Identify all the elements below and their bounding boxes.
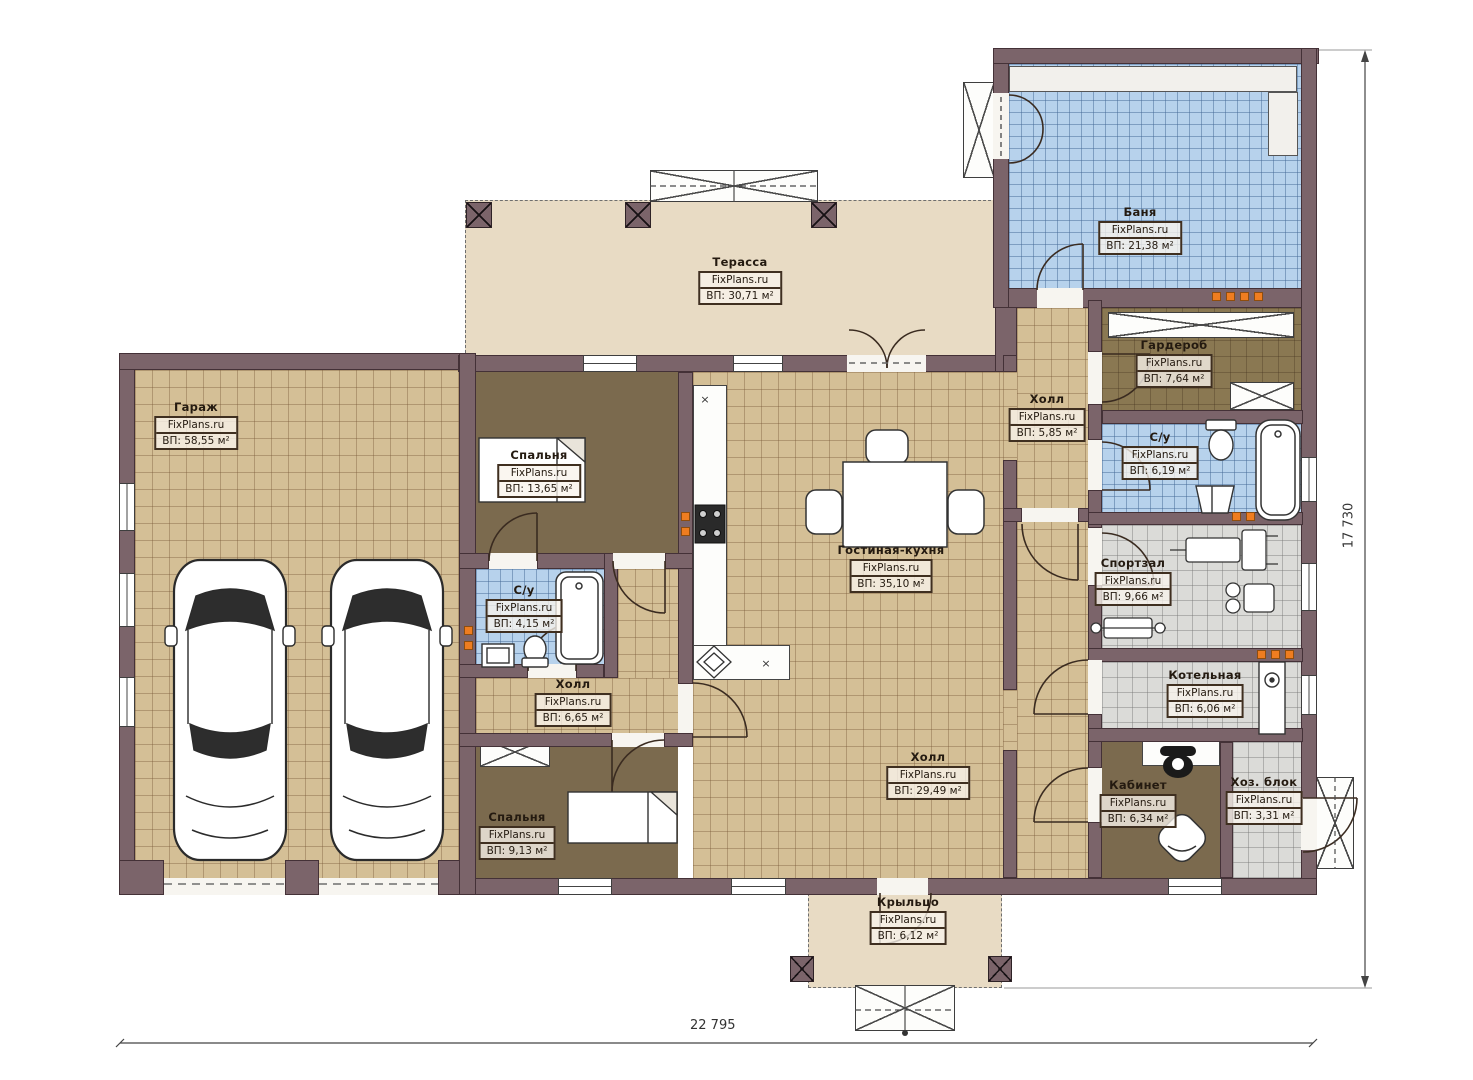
bed-bedroom2 bbox=[568, 792, 677, 843]
room-name: Котельная bbox=[1168, 668, 1241, 682]
dimension-width: 22 795 bbox=[690, 1018, 736, 1033]
room-name: Гардероб bbox=[1141, 338, 1208, 352]
sink-1 bbox=[482, 644, 514, 667]
room-label-bedroom1: Спальня FixPlans.ruВП: 13,65 м² bbox=[497, 448, 581, 498]
room-label-banya: Баня FixPlans.ruВП: 21,38 м² bbox=[1098, 205, 1182, 255]
dimension-height: 17 730 bbox=[1341, 503, 1356, 549]
brand-label: FixPlans.ru bbox=[499, 466, 579, 480]
room-label-bathroom2: С/у FixPlans.ruВП: 6,19 м² bbox=[1122, 430, 1199, 480]
room-name: Холл bbox=[1030, 392, 1065, 406]
room-area: ВП: 6,34 м² bbox=[1102, 810, 1175, 826]
kitchen-sink bbox=[697, 646, 731, 678]
brand-label: FixPlans.ru bbox=[1138, 356, 1211, 370]
vent-dot bbox=[681, 527, 690, 536]
brand-label: FixPlans.ru bbox=[1097, 574, 1170, 588]
room-area: ВП: 58,55 м² bbox=[156, 432, 236, 448]
room-area: ВП: 30,71 м² bbox=[700, 287, 780, 303]
room-name: Терасса bbox=[712, 255, 767, 269]
room-area: ВП: 13,65 м² bbox=[499, 480, 579, 496]
vent-dot bbox=[1232, 512, 1241, 521]
room-label-office: Кабинет FixPlans.ruВП: 6,34 м² bbox=[1100, 778, 1177, 828]
kitchen-stove bbox=[695, 505, 725, 543]
room-name: Гараж bbox=[174, 400, 218, 414]
room-label-gym: Спортзал FixPlans.ruВП: 9,66 м² bbox=[1095, 556, 1172, 606]
toilet-1 bbox=[522, 636, 548, 667]
brand-label: FixPlans.ru bbox=[1100, 223, 1180, 237]
vent-dot bbox=[1285, 650, 1294, 659]
vent-dot bbox=[1257, 650, 1266, 659]
vent-dot bbox=[1212, 292, 1221, 301]
room-area: ВП: 3,31 м² bbox=[1228, 807, 1301, 823]
room-label-garage: Гараж FixPlans.ruВП: 58,55 м² bbox=[154, 400, 238, 450]
brand-label: FixPlans.ru bbox=[888, 768, 968, 782]
kitchen-x-mark: × bbox=[700, 393, 709, 406]
room-area: ВП: 9,66 м² bbox=[1097, 588, 1170, 604]
room-name: Спортзал bbox=[1101, 556, 1165, 570]
room-label-hall-bedrooms: Холл FixPlans.ruВП: 6,65 м² bbox=[535, 677, 612, 727]
brand-label: FixPlans.ru bbox=[851, 561, 931, 575]
vent-dot bbox=[1240, 292, 1249, 301]
brand-label: FixPlans.ru bbox=[1124, 448, 1197, 462]
dining-set bbox=[806, 430, 984, 547]
room-name: Баня bbox=[1123, 205, 1156, 219]
room-name: С/у bbox=[1149, 430, 1170, 444]
room-area: ВП: 7,64 м² bbox=[1138, 370, 1211, 386]
room-area: ВП: 6,06 м² bbox=[1169, 700, 1242, 716]
room-label-bedroom2: Спальня FixPlans.ruВП: 9,13 м² bbox=[479, 810, 556, 860]
room-label-wardrobe: Гардероб FixPlans.ruВП: 7,64 м² bbox=[1136, 338, 1213, 388]
vent-dot bbox=[1226, 292, 1235, 301]
brand-label: FixPlans.ru bbox=[1228, 793, 1301, 807]
brand-label: FixPlans.ru bbox=[488, 601, 561, 615]
room-name: С/у bbox=[513, 583, 534, 597]
room-area: ВП: 6,19 м² bbox=[1124, 462, 1197, 478]
room-label-hall-main: Холл FixPlans.ruВП: 29,49 м² bbox=[886, 750, 970, 800]
room-label-utility: Хоз. блок FixPlans.ruВП: 3,31 м² bbox=[1226, 775, 1303, 825]
room-area: ВП: 21,38 м² bbox=[1100, 237, 1180, 253]
room-name: Холл bbox=[911, 750, 946, 764]
room-name: Хоз. блок bbox=[1231, 775, 1298, 789]
room-area: ВП: 6,12 м² bbox=[872, 927, 945, 943]
vent-dot bbox=[464, 641, 473, 650]
brand-label: FixPlans.ru bbox=[156, 418, 236, 432]
brand-label: FixPlans.ru bbox=[481, 828, 554, 842]
car-1 bbox=[165, 560, 295, 860]
office-chair bbox=[1160, 746, 1196, 778]
brand-label: FixPlans.ru bbox=[537, 695, 610, 709]
bathtub-2 bbox=[1256, 420, 1300, 520]
sink-2 bbox=[1196, 486, 1234, 513]
room-label-porch: Крыльцо FixPlans.ruВП: 6,12 м² bbox=[870, 895, 947, 945]
vent-dot bbox=[1254, 292, 1263, 301]
boiler-unit bbox=[1259, 662, 1285, 734]
room-area: ВП: 5,85 м² bbox=[1011, 424, 1084, 440]
vent-dot bbox=[1246, 512, 1255, 521]
room-area: ВП: 6,65 м² bbox=[537, 709, 610, 725]
room-name: Спальня bbox=[510, 448, 567, 462]
room-label-living-kitchen: Гостиная-кухня FixPlans.ruВП: 35,10 м² bbox=[838, 543, 945, 593]
floor-plan: × × bbox=[0, 0, 1473, 1080]
brand-label: FixPlans.ru bbox=[872, 913, 945, 927]
plan-linework: × × bbox=[0, 0, 1473, 1080]
room-name: Гостиная-кухня bbox=[838, 543, 945, 557]
room-name: Спальня bbox=[488, 810, 545, 824]
brand-label: FixPlans.ru bbox=[1169, 686, 1242, 700]
room-area: ВП: 9,13 м² bbox=[481, 842, 554, 858]
vent-dot bbox=[1271, 650, 1280, 659]
brand-label: FixPlans.ru bbox=[1102, 796, 1175, 810]
brand-label: FixPlans.ru bbox=[700, 273, 780, 287]
room-area: ВП: 4,15 м² bbox=[488, 615, 561, 631]
room-area: ВП: 35,10 м² bbox=[851, 575, 931, 591]
vent-dot bbox=[464, 626, 473, 635]
room-label-hall-small: Холл FixPlans.ruВП: 5,85 м² bbox=[1009, 392, 1086, 442]
brand-label: FixPlans.ru bbox=[1011, 410, 1084, 424]
room-label-boiler: Котельная FixPlans.ruВП: 6,06 м² bbox=[1167, 668, 1244, 718]
toilet-2 bbox=[1206, 420, 1236, 460]
bathtub-1 bbox=[556, 572, 603, 664]
room-label-bathroom1: С/у FixPlans.ruВП: 4,15 м² bbox=[486, 583, 563, 633]
room-name: Кабинет bbox=[1109, 778, 1167, 792]
room-name: Холл bbox=[556, 677, 591, 691]
kitchen-x-mark2: × bbox=[761, 657, 770, 670]
car-2 bbox=[322, 560, 452, 860]
dimension-lines bbox=[116, 50, 1372, 1047]
room-area: ВП: 29,49 м² bbox=[888, 782, 968, 798]
room-label-terrace: Терасса FixPlans.ruВП: 30,71 м² bbox=[698, 255, 782, 305]
vent-dot bbox=[681, 512, 690, 521]
room-name: Крыльцо bbox=[877, 895, 939, 909]
